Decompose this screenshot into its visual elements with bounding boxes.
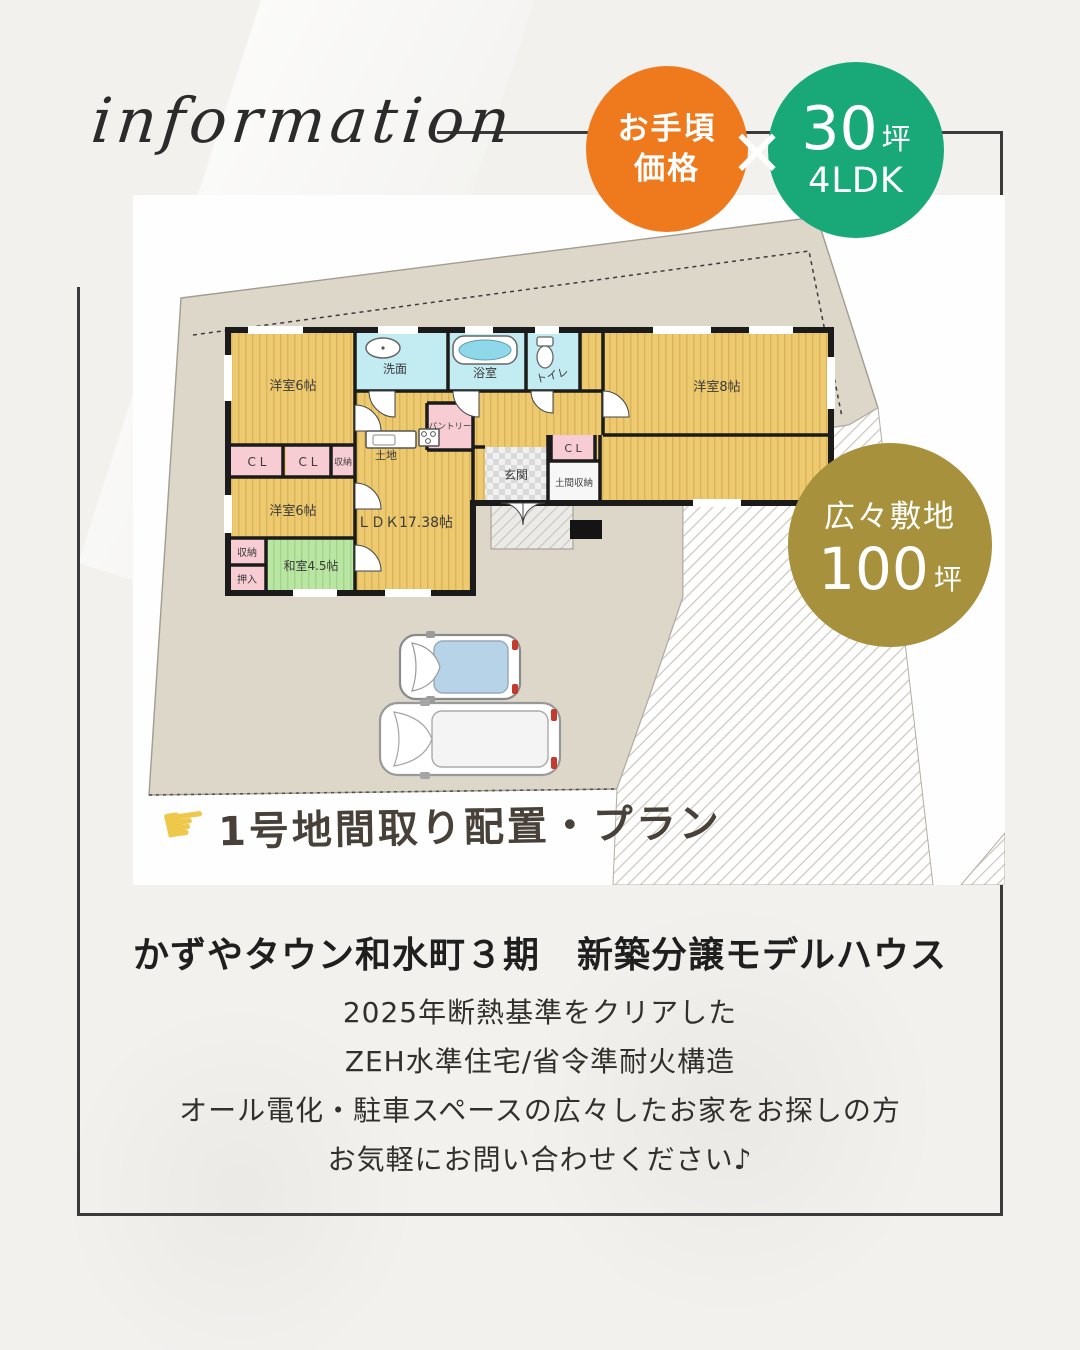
description-line: オール電化・駐車スペースの広々したお家をお探しの方 — [77, 1086, 1003, 1135]
room-label: 収納 — [237, 546, 257, 559]
kitchen-sink-icon — [373, 435, 395, 445]
room-label: C L — [299, 455, 318, 469]
room-label: 和室4.5帖 — [283, 558, 338, 573]
multiply-mark: × — [722, 112, 792, 189]
room-label: 洋室8帖 — [693, 379, 740, 395]
room-label: 押入 — [237, 573, 257, 586]
entry-step-block — [570, 520, 602, 539]
room-label: ＬＤＫ17.38帖 — [357, 515, 453, 531]
room-label: C L — [564, 442, 582, 455]
room-label: 浴室 — [473, 365, 497, 380]
pointing-hand-icon: ☛ — [158, 795, 211, 853]
size-badge-unit: 坪 — [882, 116, 911, 158]
plan-caption: ☛ 1号地間取り配置・プラン — [161, 795, 721, 853]
room-label: 土間収納 — [555, 477, 593, 489]
room-label: 洋室6帖 — [269, 378, 316, 394]
room-label: 洗面 — [383, 362, 407, 376]
flyer-page: information — [0, 0, 1080, 1350]
room-label: 土地 — [375, 449, 397, 462]
car-small — [400, 631, 520, 703]
size-badge: 30 坪 4LDK — [768, 62, 944, 238]
room-label: 収納 — [334, 456, 352, 468]
bathtub-water — [459, 340, 511, 360]
lot-badge: 広々敷地 100 坪 — [788, 443, 992, 647]
lot-badge-value: 100 — [818, 538, 929, 600]
description-line: お気軽にお問い合わせください♪ — [77, 1135, 1003, 1184]
frame-bottom-line — [77, 1213, 1003, 1216]
room-label: C L — [248, 455, 267, 469]
lot-badge-title: 広々敷地 — [824, 491, 956, 536]
size-badge-subtitle: 4LDK — [808, 161, 904, 201]
toilet-bowl-icon — [537, 346, 553, 368]
lot-badge-unit: 坪 — [934, 558, 962, 598]
room-label: 玄関 — [504, 467, 528, 482]
description-line: ZEH水準住宅/省令準耐火構造 — [77, 1037, 1003, 1086]
car-large — [380, 699, 560, 779]
size-badge-value: 30 — [801, 99, 877, 159]
property-description: 2025年断熱基準をクリアした ZEH水準住宅/省令準耐火構造 オール電化・駐車… — [77, 988, 1003, 1184]
room-label: 洋室6帖 — [269, 503, 316, 519]
property-title: かずやタウン和水町３期 新築分譲モデルハウス — [77, 926, 1003, 978]
price-badge-line2: 価格 — [634, 149, 700, 189]
price-badge-line1: お手頃 — [618, 109, 717, 149]
information-script-title: information — [88, 84, 518, 157]
plan-caption-text: 1号地間取り配置・プラン — [217, 791, 722, 858]
room-label: パントリー — [429, 422, 472, 432]
description-line: 2025年断熱基準をクリアした — [77, 988, 1003, 1037]
toilet-tank-icon — [537, 337, 553, 346]
